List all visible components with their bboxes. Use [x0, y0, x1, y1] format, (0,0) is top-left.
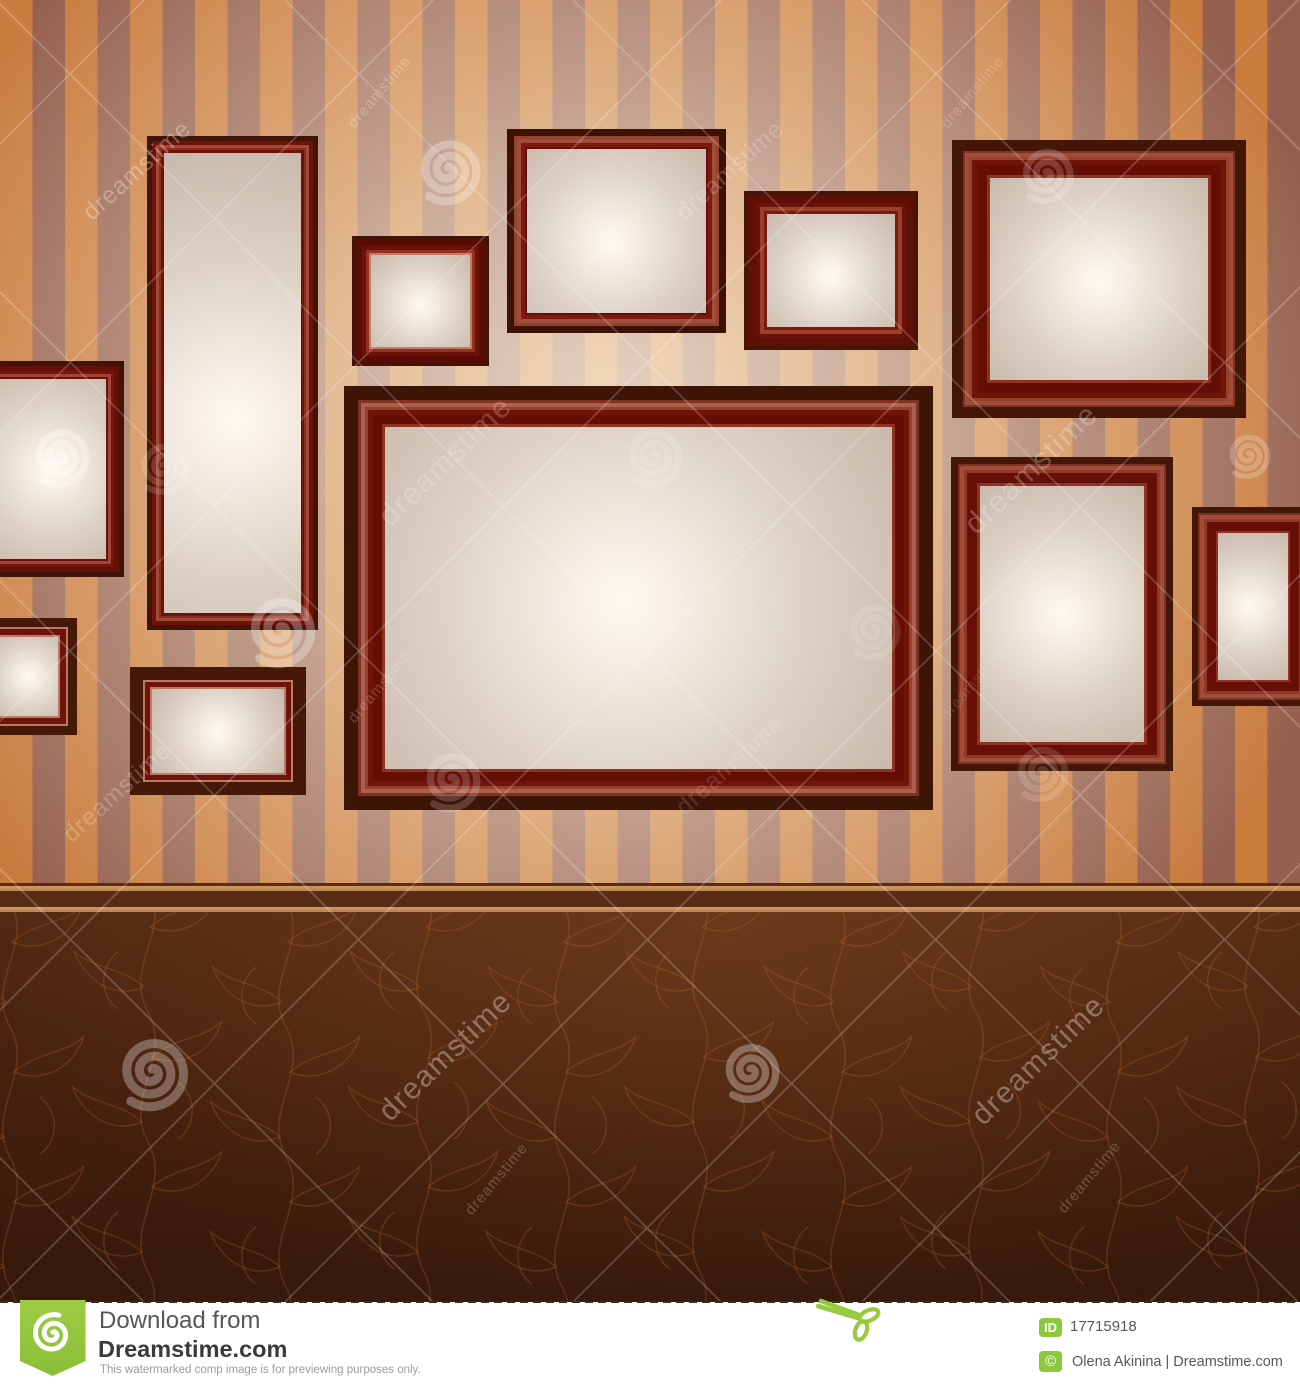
svg-text:dreamstime: dreamstime	[965, 989, 1111, 1132]
svg-text:dreamstime: dreamstime	[462, 1140, 532, 1219]
svg-text:dreamstime: dreamstime	[938, 53, 1008, 132]
svg-text:dreamstime: dreamstime	[345, 648, 415, 727]
svg-text:dreamstime: dreamstime	[671, 115, 790, 226]
svg-text:dreamstime: dreamstime	[671, 710, 790, 821]
svg-text:dreamstime: dreamstime	[58, 737, 177, 848]
svg-text:dreamstime: dreamstime	[78, 115, 197, 226]
svg-text:dreamstime: dreamstime	[372, 985, 518, 1128]
svg-text:dreamstime: dreamstime	[372, 390, 518, 533]
svg-text:dreamstime: dreamstime	[958, 398, 1104, 541]
svg-text:dreamstime: dreamstime	[1055, 1138, 1125, 1217]
